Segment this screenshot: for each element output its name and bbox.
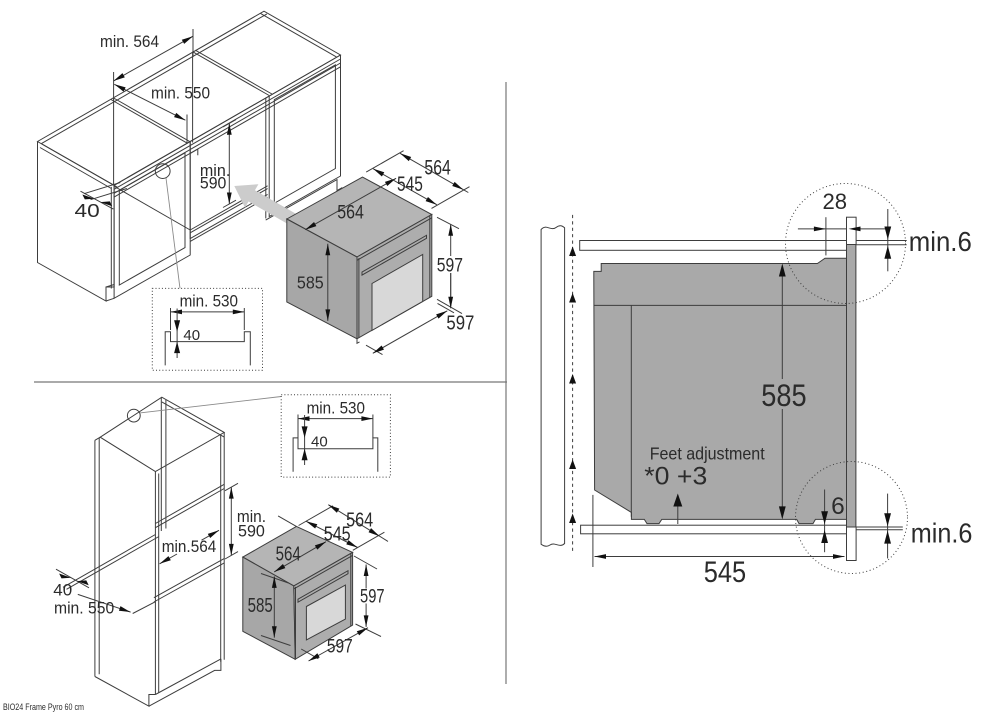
svg-text:40: 40 [311, 434, 328, 451]
svg-text:585: 585 [761, 377, 806, 413]
svg-text:585: 585 [297, 272, 324, 292]
svg-text:min. 530: min. 530 [180, 292, 238, 310]
svg-text:*0 +3: *0 +3 [644, 463, 707, 491]
svg-text:597: 597 [360, 585, 385, 607]
svg-text:min.6: min.6 [909, 226, 972, 257]
svg-text:40: 40 [75, 201, 100, 221]
svg-text:6: 6 [831, 493, 845, 520]
svg-text:min. 550: min. 550 [151, 83, 210, 102]
svg-text:585: 585 [248, 595, 273, 617]
svg-text:597: 597 [446, 313, 474, 335]
svg-text:min.564: min.564 [162, 538, 217, 556]
svg-text:28: 28 [823, 189, 848, 214]
svg-text:40: 40 [53, 580, 72, 599]
svg-text:564: 564 [337, 201, 364, 223]
svg-text:545: 545 [397, 173, 423, 196]
svg-text:564: 564 [424, 156, 451, 179]
svg-text:564: 564 [346, 510, 373, 532]
svg-text:BIO24 Frame Pyro 60 cm: BIO24 Frame Pyro 60 cm [3, 702, 84, 713]
svg-text:590: 590 [238, 521, 265, 540]
svg-text:Feet adjustment: Feet adjustment [650, 443, 765, 463]
svg-text:564: 564 [276, 543, 301, 565]
svg-text:545: 545 [704, 556, 746, 589]
svg-text:597: 597 [437, 255, 463, 276]
svg-text:40: 40 [183, 327, 200, 344]
svg-text:597: 597 [327, 636, 353, 658]
svg-text:min.6: min.6 [911, 517, 973, 548]
svg-text:min. 564: min. 564 [100, 32, 159, 51]
svg-text:min. 550: min. 550 [54, 600, 114, 618]
svg-text:min. 530: min. 530 [307, 400, 365, 418]
svg-text:590: 590 [200, 174, 227, 193]
